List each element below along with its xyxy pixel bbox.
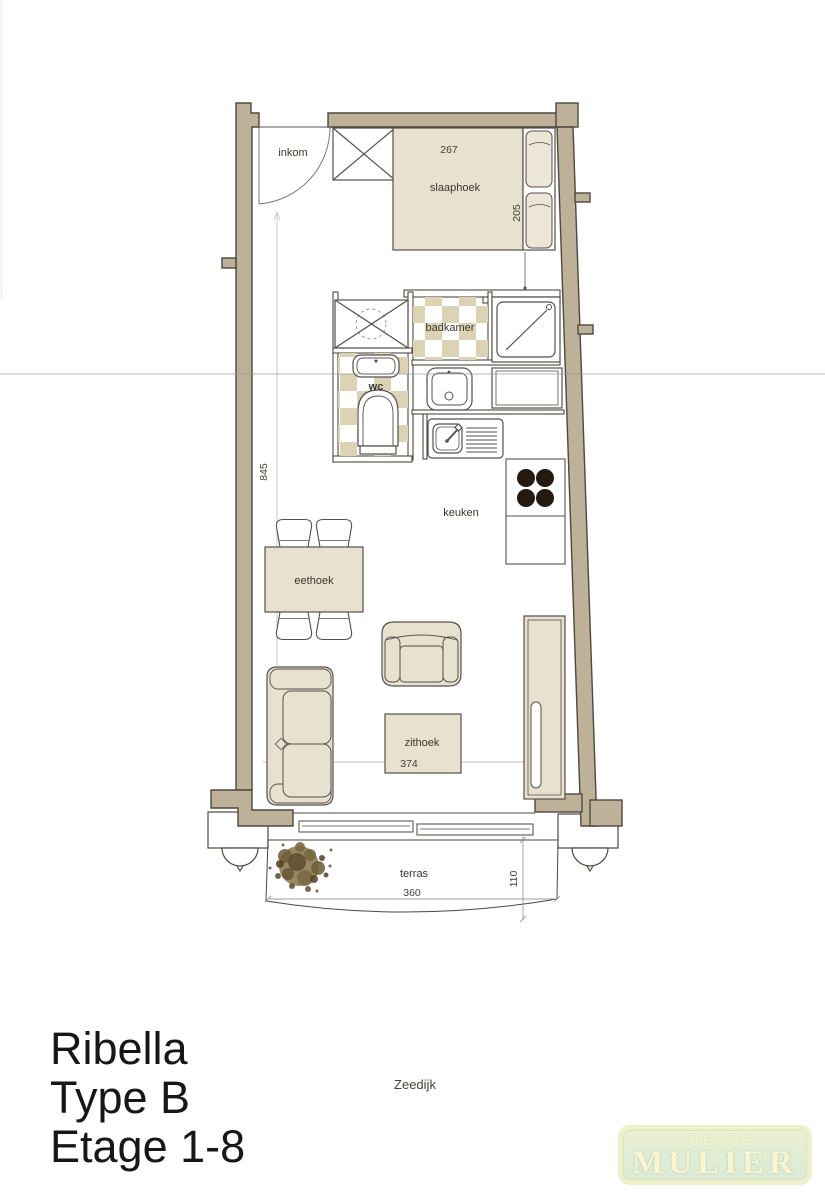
bottom-right-foot [590, 800, 622, 826]
dining-chair [316, 520, 351, 548]
agency-logo-name: MULIER [623, 1145, 807, 1182]
dining-chair [276, 520, 311, 548]
plant [269, 842, 333, 893]
pillow [526, 131, 552, 187]
terrace-curve [266, 899, 557, 912]
label-zeedijk: Zeedijk [394, 1077, 436, 1092]
top-wall [328, 113, 557, 127]
apartment-type: Type B [50, 1073, 245, 1122]
label-slaaphoek: slaaphoek [430, 182, 481, 194]
dining-chair [276, 612, 311, 640]
dim-bed-depth: 205 [511, 204, 523, 222]
label-eethoek: eethoek [294, 575, 334, 587]
sliding-door [299, 821, 533, 835]
right-wall-tab [575, 193, 590, 202]
label-wc: wc [368, 381, 384, 393]
dim-terras-width: 360 [403, 887, 421, 899]
right-wall-tab [578, 325, 593, 334]
label-inkom: inkom [278, 147, 307, 159]
dim-apartment-length: 845 [258, 463, 270, 481]
armchair [382, 622, 461, 686]
pillow [526, 193, 552, 248]
stove [517, 469, 554, 507]
drainer [466, 428, 497, 452]
label-zithoek: zithoek [405, 737, 440, 749]
sofa [267, 667, 333, 805]
wardrobe [333, 128, 395, 180]
left-wall [236, 103, 259, 790]
wall-cabinet [524, 616, 565, 799]
floor-plan: inkom 267 slaaphoek 205 badkamer wc keuk… [0, 0, 825, 1200]
top-right-stub [556, 103, 578, 127]
project-name: Ribella [50, 1024, 245, 1073]
dim-zithoek: 374 [400, 758, 418, 770]
label-keuken: keuken [443, 507, 478, 519]
label-badkamer: badkamer [426, 322, 475, 334]
label-terras: terras [400, 868, 429, 880]
kitchen-sink [428, 419, 503, 458]
entrance-door [259, 127, 330, 204]
toilet [358, 390, 398, 454]
scanned-floor-plan-page: inkom 267 slaaphoek 205 badkamer wc keuk… [0, 0, 825, 1200]
dim-terras-depth: 110 [508, 870, 520, 887]
dim-bed-width: 267 [440, 144, 458, 156]
agency-logo: AGENCE MULIER [618, 1125, 812, 1185]
counter [506, 459, 565, 564]
shower [492, 297, 560, 362]
floor-range: Etage 1-8 [50, 1122, 245, 1171]
left-wall-tab [222, 258, 236, 268]
plan-title-block: Ribella Type B Etage 1-8 [50, 1024, 245, 1171]
laundry-closet [335, 300, 408, 348]
dining-chair [316, 612, 351, 640]
